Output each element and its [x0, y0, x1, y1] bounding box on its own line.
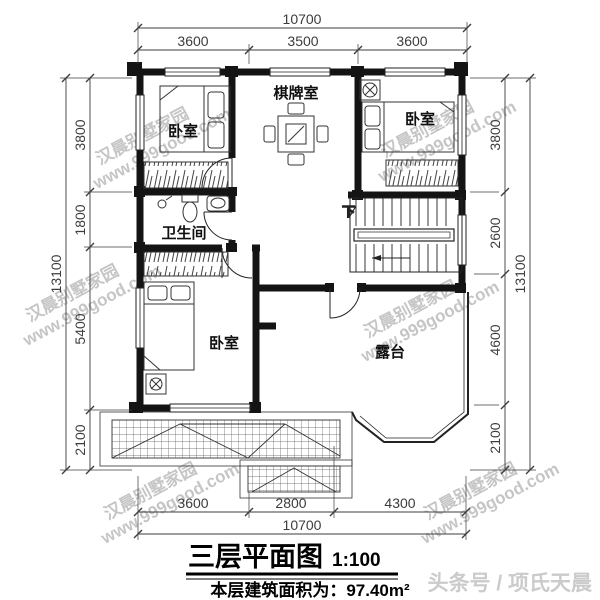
room-label-bedroom-bottom-left: 卧室	[209, 334, 239, 352]
wardrobe-top-left	[144, 162, 228, 188]
dim-top-seg-2: 3500	[287, 33, 318, 49]
credit-text: 头条号 / 项氏天晨	[427, 571, 593, 595]
dim-bottom-seg-1: 3600	[177, 495, 208, 511]
roof-tile-hatch	[112, 420, 340, 458]
floor-drain	[158, 200, 166, 208]
floor-plan-drawing: 汉晨别墅家园 www.999good.com 汉晨别墅家园 www.999goo…	[0, 0, 600, 600]
column	[249, 402, 261, 413]
dim-top-total: 10700	[283, 11, 322, 27]
chair	[288, 154, 304, 165]
room-label-terrace: 露台	[375, 343, 405, 361]
drawing-title: 三层平面图	[188, 542, 323, 572]
column	[134, 186, 145, 197]
wardrobe-bottom-left	[144, 252, 228, 276]
dim-bottom-total: 10700	[283, 517, 322, 533]
nightstand-cross	[151, 379, 161, 389]
dim-right-total: 13100	[512, 254, 528, 293]
floor-drain-mark	[166, 196, 172, 200]
column	[127, 62, 142, 76]
drawing-scale: 1:100	[332, 550, 381, 571]
dim-bottom-seg-3: 4300	[384, 495, 415, 511]
dim-left-seg-3: 5400	[72, 313, 88, 344]
roof-tile-hatch-lower	[248, 466, 340, 492]
bed-bottom-left-lines	[144, 304, 194, 370]
dim-left-seg-4: 2100	[72, 424, 88, 455]
column	[357, 283, 366, 292]
room-label-bedroom-top-right: 卧室	[405, 110, 435, 128]
chair	[317, 126, 328, 142]
floor-plan-page: 汉晨别墅家园 www.999good.com 汉晨别墅家园 www.999goo…	[0, 0, 600, 600]
dim-bottom-seg-2: 2800	[275, 495, 306, 511]
watermark: 汉晨别墅家园 www.999good.com	[407, 440, 562, 548]
column	[134, 242, 145, 253]
dim-left-seg-1: 3800	[72, 119, 88, 150]
dim-left-total: 13100	[48, 254, 64, 293]
room-label-bedroom-top-left: 卧室	[168, 122, 198, 140]
chair	[264, 126, 275, 142]
dim-right-seg-3: 4600	[487, 324, 503, 355]
stair-direction-arrow	[372, 255, 381, 261]
dim-right-seg-1: 3800	[487, 119, 503, 150]
watermark: 汉晨别墅家园 www.999good.com	[347, 258, 502, 366]
stair-outline	[350, 198, 462, 272]
dim-top-seg-1: 3600	[177, 33, 208, 49]
toilet-bowl	[183, 202, 197, 222]
dim-left-seg-2: 1800	[72, 204, 88, 235]
door-terrace	[330, 288, 360, 318]
stair-handrail-inner	[358, 232, 450, 238]
dim-right-seg-2: 2600	[487, 217, 503, 248]
wardrobe-top-right	[386, 160, 458, 186]
pillow	[365, 106, 380, 126]
mahjong-table-glyph	[288, 126, 304, 142]
title-block: 三层平面图 1:100 本层建筑面积为：97.40m²	[186, 542, 410, 600]
column	[226, 243, 237, 252]
stair-treads	[356, 198, 446, 272]
column	[225, 66, 238, 77]
door-bathroom	[204, 212, 232, 240]
dim-top-seg-3: 3600	[396, 33, 427, 49]
staircase: 下	[342, 198, 462, 272]
column	[351, 66, 364, 77]
pillow	[171, 286, 190, 300]
room-label-game-room: 棋牌室	[273, 84, 318, 102]
sink-basin	[211, 198, 225, 208]
dim-right-seg-4: 2100	[487, 422, 503, 453]
bed-bottom-left	[144, 282, 194, 370]
side-table-cross	[365, 85, 375, 95]
pillow	[148, 286, 167, 300]
stair-handrail	[354, 229, 454, 241]
toilet-tank	[182, 195, 198, 202]
column	[455, 283, 466, 293]
floor-area-text: 本层建筑面积为：97.40m²	[210, 580, 410, 600]
column	[129, 402, 143, 413]
column	[454, 62, 468, 76]
chair	[288, 103, 304, 114]
room-label-bathroom: 卫生间	[161, 224, 206, 242]
